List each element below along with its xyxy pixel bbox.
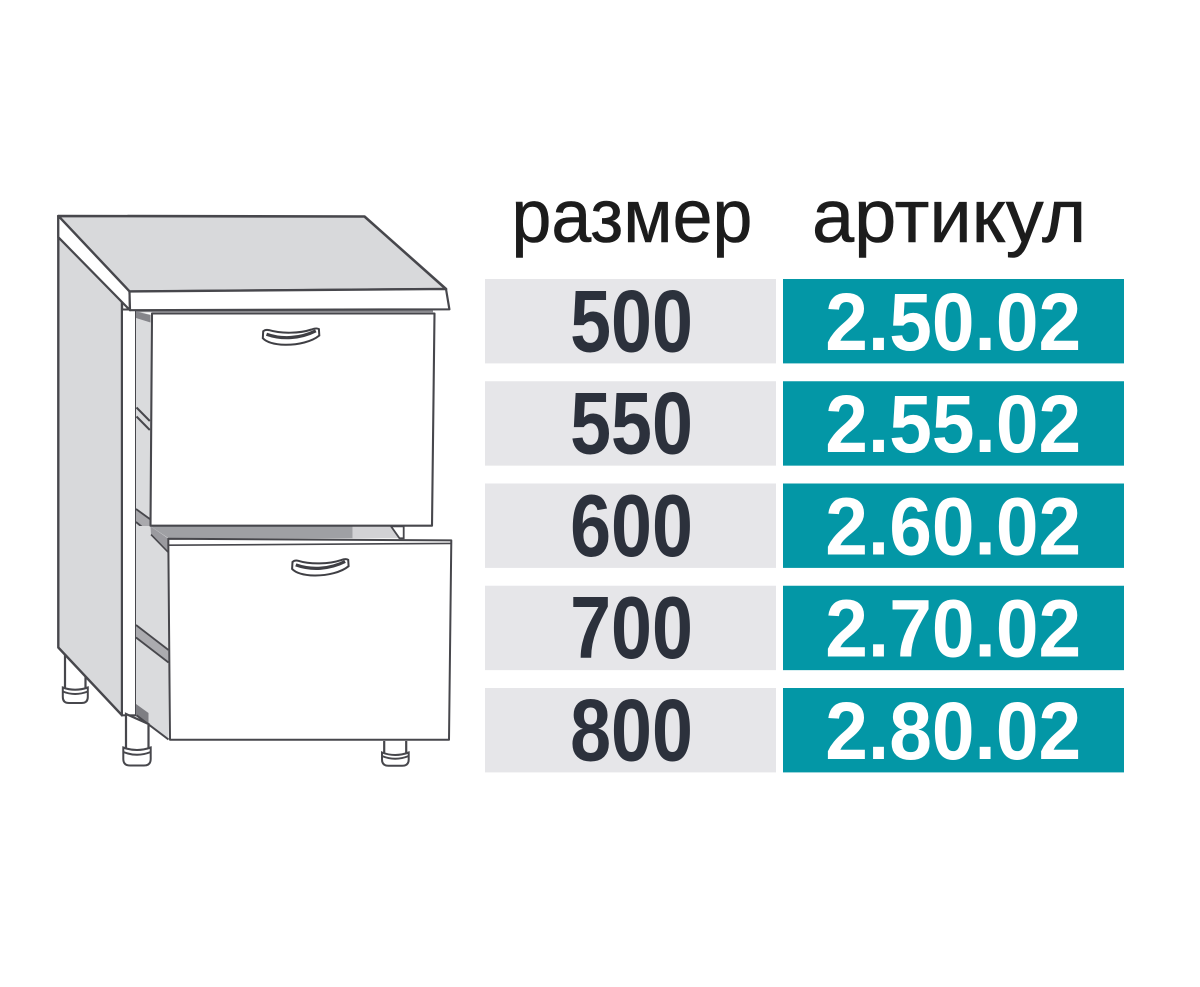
svg-text:2.80.02: 2.80.02 xyxy=(825,685,1081,777)
svg-text:800: 800 xyxy=(570,681,693,780)
svg-text:2.60.02: 2.60.02 xyxy=(825,480,1081,572)
svg-text:2.70.02: 2.70.02 xyxy=(825,582,1081,674)
svg-text:600: 600 xyxy=(570,476,693,575)
svg-text:700: 700 xyxy=(570,579,693,678)
svg-text:размер: размер xyxy=(512,174,753,258)
svg-text:2.50.02: 2.50.02 xyxy=(825,276,1081,368)
svg-text:550: 550 xyxy=(570,374,693,473)
svg-text:артикул: артикул xyxy=(812,174,1086,258)
svg-text:500: 500 xyxy=(570,272,693,371)
svg-text:2.55.02: 2.55.02 xyxy=(825,378,1081,470)
